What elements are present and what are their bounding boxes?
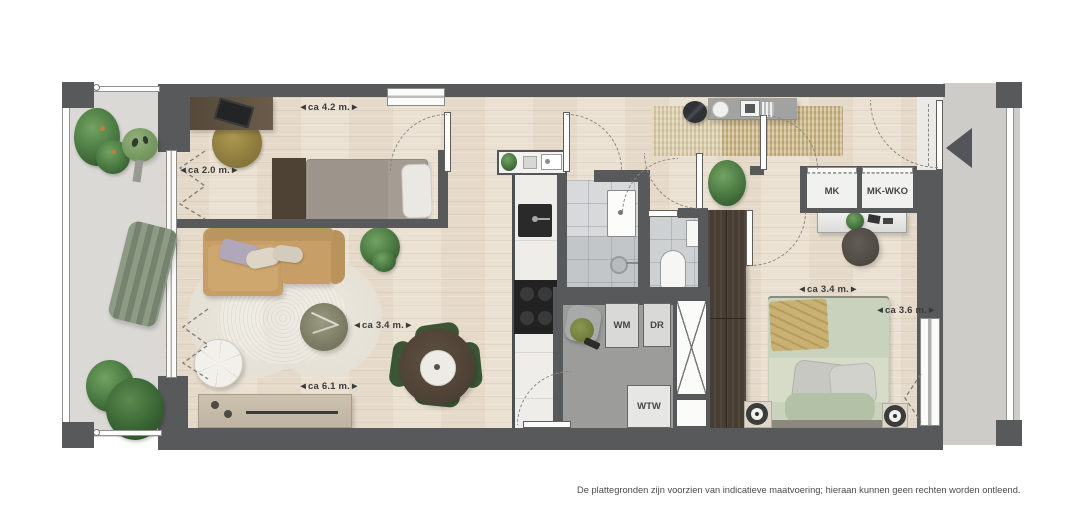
sideboard-speaker xyxy=(211,401,219,409)
railing-joint-bottom xyxy=(93,429,100,436)
entrance-arrow-icon xyxy=(946,128,972,168)
sofa-armrest xyxy=(331,230,345,284)
hall-plant xyxy=(708,160,746,206)
kitchen-cabinet-plant xyxy=(501,153,517,171)
burner-4 xyxy=(538,311,552,325)
kitchen-cooktop xyxy=(514,280,557,334)
wall-top xyxy=(158,84,945,97)
nightstand-lamp-left-dot xyxy=(755,412,759,416)
dim-living-width: ◄ca 6.1 m.► xyxy=(296,381,362,393)
railing-joint-top xyxy=(93,84,100,91)
living-balcony-door-fold xyxy=(179,307,211,381)
study-bed-blanket xyxy=(308,160,388,220)
burner-3 xyxy=(520,311,534,325)
bedroom-window-tilt xyxy=(902,372,924,424)
closet-mk: MK xyxy=(807,173,857,208)
wall-bathroom-west xyxy=(557,170,567,297)
shower-drain xyxy=(610,256,628,274)
tv-screen xyxy=(246,411,338,414)
dim-bedroom-width: ◄ca 3.4 m.► xyxy=(795,284,861,296)
kitchen-faucet-arm xyxy=(538,218,550,220)
kitchen-counter-seam-2 xyxy=(515,352,557,353)
washer-box: WM xyxy=(605,303,639,348)
balcony-plant-berry-2 xyxy=(112,150,116,154)
bed-headboard xyxy=(768,420,889,428)
disclaimer-text: De plattegronden zijn voorzien van indic… xyxy=(577,485,1020,495)
burner-1 xyxy=(520,287,534,301)
wall-study-living-divider xyxy=(172,219,447,228)
dining-table-center-dot xyxy=(434,364,440,370)
heat-recovery-box: WTW xyxy=(627,385,671,428)
dim-study-depth: ◄ca 2.0 m.► xyxy=(176,165,242,177)
wall-bottom xyxy=(158,428,943,450)
wall-wc-east xyxy=(698,208,708,297)
floorplan: MK MK-WKO WM DR WTW xyxy=(0,0,1092,531)
wardrobe xyxy=(708,210,746,430)
nightstand-lamp-right-dot xyxy=(893,414,897,418)
wardrobe-shelf-seam xyxy=(708,318,746,319)
gallery-pillar-bottom xyxy=(996,420,1022,446)
balcony-plant-berry xyxy=(100,126,105,131)
dryer-box: DR xyxy=(643,303,671,347)
shaft-lower-box xyxy=(676,399,707,427)
living-plant-2 xyxy=(372,250,396,272)
gallery-pillar-top xyxy=(996,82,1022,108)
toilet xyxy=(660,250,686,288)
shower-mixer xyxy=(626,262,638,264)
kitchen-counter-seam xyxy=(515,240,557,241)
bed-bolster-pillow xyxy=(785,393,875,423)
kitchen-cabinet-tray-dot xyxy=(545,159,550,164)
burner-2 xyxy=(538,287,552,301)
entrance-door-dashed-line xyxy=(928,104,930,166)
study-bed-bench xyxy=(272,158,306,221)
balcony-ornament-plant xyxy=(122,128,158,162)
kitchen-cabinet-jars xyxy=(523,156,537,169)
study-balcony-door-fold xyxy=(176,149,208,221)
hall-stool xyxy=(683,101,707,123)
study-window xyxy=(387,88,445,106)
dim-study-width: ◄ca 4.2 m.► xyxy=(296,102,362,114)
shaft xyxy=(676,300,707,395)
closet-mk-wko: MK-WKO xyxy=(862,173,913,208)
balcony-pillar-bottom xyxy=(62,422,94,448)
gallery-railing xyxy=(1006,84,1014,444)
dim-bedroom-depth: ◄ca 3.6 m.► xyxy=(873,305,939,317)
bed-throw-blanket xyxy=(769,299,830,352)
sideboard-speaker-2 xyxy=(224,410,232,418)
console-box-inner xyxy=(745,104,755,113)
wardrobe-door-seam xyxy=(726,210,727,430)
console-bowl xyxy=(712,101,729,118)
wall-left-pillar-top xyxy=(158,84,190,152)
balcony-railing-left xyxy=(62,86,70,438)
dim-living-depth: ◄ca 3.4 m.► xyxy=(350,320,416,332)
bedroom-desk-item-2 xyxy=(883,218,893,224)
study-bed-pillow xyxy=(401,163,433,218)
balcony-pillar-top xyxy=(62,82,94,108)
